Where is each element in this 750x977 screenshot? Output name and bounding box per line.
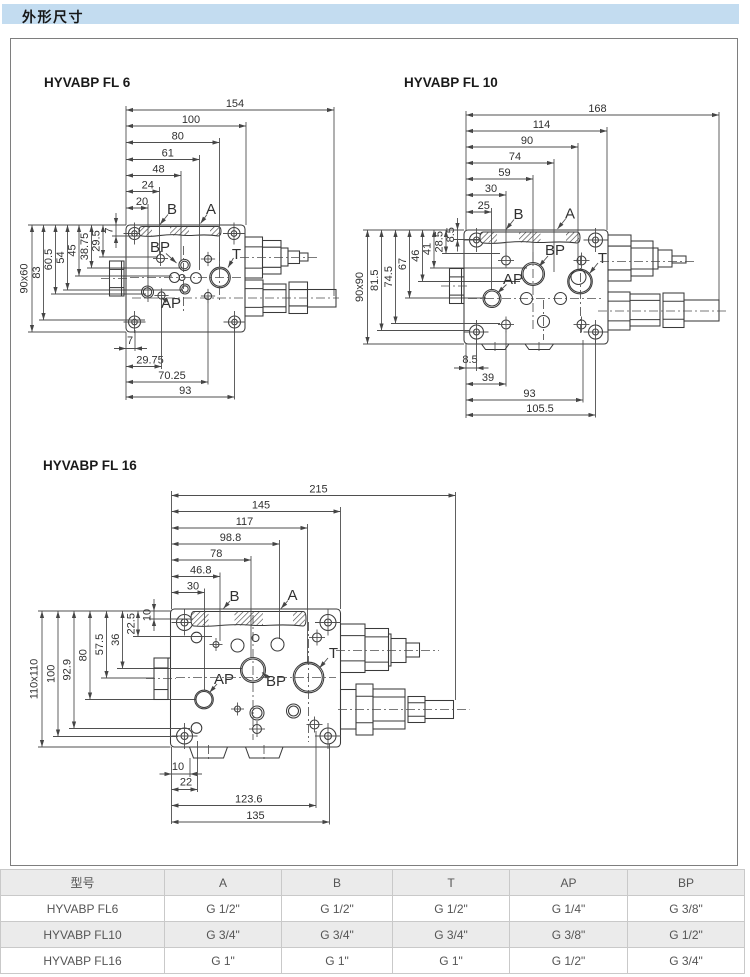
svg-text:105.5: 105.5 bbox=[526, 403, 554, 415]
svg-text:114: 114 bbox=[533, 119, 551, 131]
svg-text:45: 45 bbox=[66, 244, 78, 256]
svg-text:30: 30 bbox=[187, 581, 199, 593]
svg-text:30: 30 bbox=[485, 183, 497, 195]
svg-text:A: A bbox=[565, 206, 575, 223]
svg-text:123.6: 123.6 bbox=[235, 794, 263, 806]
svg-text:39: 39 bbox=[482, 372, 494, 384]
svg-text:168: 168 bbox=[588, 103, 606, 115]
svg-text:100: 100 bbox=[182, 114, 200, 126]
svg-text:83: 83 bbox=[31, 266, 43, 278]
svg-text:AP: AP bbox=[214, 671, 234, 688]
svg-text:57.5: 57.5 bbox=[94, 634, 106, 655]
svg-text:67: 67 bbox=[397, 258, 409, 270]
svg-text:74: 74 bbox=[509, 151, 521, 163]
svg-text:61: 61 bbox=[162, 148, 174, 160]
svg-text:29.75: 29.75 bbox=[136, 355, 164, 367]
svg-text:29.5: 29.5 bbox=[90, 230, 102, 251]
svg-text:100: 100 bbox=[45, 665, 57, 683]
svg-text:24: 24 bbox=[142, 180, 154, 192]
svg-text:T: T bbox=[329, 645, 338, 662]
svg-text:20: 20 bbox=[136, 196, 148, 208]
svg-text:T: T bbox=[598, 250, 607, 267]
svg-text:110x110: 110x110 bbox=[29, 659, 41, 700]
svg-text:90x90: 90x90 bbox=[354, 272, 366, 302]
svg-text:BP: BP bbox=[150, 239, 170, 256]
svg-text:54: 54 bbox=[55, 251, 67, 263]
svg-text:117: 117 bbox=[236, 516, 254, 528]
svg-text:46: 46 bbox=[410, 250, 422, 262]
svg-text:28.5: 28.5 bbox=[433, 231, 445, 252]
svg-text:B: B bbox=[167, 201, 177, 218]
svg-text:78: 78 bbox=[210, 548, 222, 560]
svg-text:B: B bbox=[513, 206, 523, 223]
svg-text:AP: AP bbox=[161, 295, 181, 312]
svg-text:7: 7 bbox=[103, 227, 115, 233]
svg-text:38.75: 38.75 bbox=[79, 233, 91, 261]
svg-text:8.5: 8.5 bbox=[462, 354, 477, 366]
svg-text:25: 25 bbox=[478, 200, 490, 212]
svg-text:98.8: 98.8 bbox=[220, 532, 241, 544]
svg-text:92.9: 92.9 bbox=[61, 659, 73, 680]
svg-text:T: T bbox=[232, 246, 241, 263]
svg-text:48: 48 bbox=[152, 164, 164, 176]
svg-text:41: 41 bbox=[421, 243, 433, 255]
svg-text:A: A bbox=[287, 587, 297, 604]
svg-text:A: A bbox=[206, 201, 216, 218]
svg-text:145: 145 bbox=[252, 500, 270, 512]
svg-text:8.5: 8.5 bbox=[445, 227, 457, 242]
svg-text:22: 22 bbox=[180, 777, 192, 789]
svg-text:HYVABP FL 10: HYVABP FL 10 bbox=[404, 75, 498, 90]
svg-text:36: 36 bbox=[110, 634, 122, 646]
svg-text:90x60: 90x60 bbox=[19, 264, 31, 294]
svg-text:60.5: 60.5 bbox=[43, 249, 55, 270]
svg-text:154: 154 bbox=[226, 98, 244, 110]
svg-text:10: 10 bbox=[172, 761, 184, 773]
svg-text:93: 93 bbox=[523, 388, 535, 400]
svg-text:90: 90 bbox=[521, 135, 533, 147]
svg-text:80: 80 bbox=[172, 131, 184, 143]
svg-text:46.8: 46.8 bbox=[190, 565, 211, 577]
svg-text:74.5: 74.5 bbox=[383, 266, 395, 287]
svg-text:81.5: 81.5 bbox=[369, 270, 381, 291]
svg-text:215: 215 bbox=[309, 484, 327, 496]
svg-text:BP: BP bbox=[266, 673, 286, 690]
svg-text:135: 135 bbox=[246, 810, 264, 822]
svg-text:22.5: 22.5 bbox=[125, 613, 137, 634]
svg-text:7: 7 bbox=[127, 335, 133, 347]
svg-text:93: 93 bbox=[179, 385, 191, 397]
svg-text:70.25: 70.25 bbox=[158, 370, 186, 382]
svg-text:B: B bbox=[229, 588, 239, 605]
svg-text:HYVABP FL 6: HYVABP FL 6 bbox=[44, 75, 131, 90]
svg-text:80: 80 bbox=[77, 649, 89, 661]
svg-text:HYVABP FL 16: HYVABP FL 16 bbox=[43, 458, 137, 473]
svg-text:59: 59 bbox=[498, 167, 510, 179]
